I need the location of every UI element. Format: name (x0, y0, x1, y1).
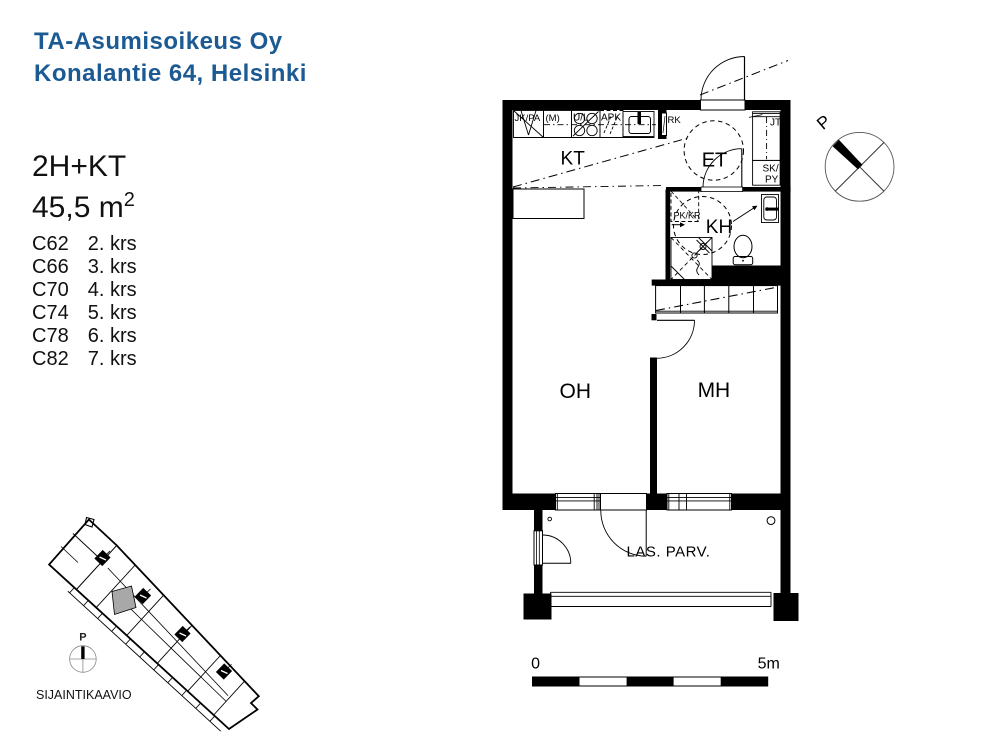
svg-text:P: P (79, 632, 86, 644)
svg-text:MH: MH (698, 379, 731, 402)
svg-text:SK/: SK/ (763, 164, 779, 175)
svg-text:(M): (M) (546, 113, 560, 124)
svg-text:OH: OH (560, 380, 592, 403)
svg-text:JK/PA: JK/PA (515, 113, 541, 124)
svg-text:5m: 5m (758, 656, 780, 673)
svg-text:PY: PY (765, 175, 779, 186)
svg-text:LAS. PARV.: LAS. PARV. (627, 543, 711, 560)
svg-text:U/L: U/L (573, 113, 589, 124)
svg-text:JT: JT (770, 118, 781, 129)
svg-text:SIJAINTIKAAVIO: SIJAINTIKAAVIO (36, 688, 132, 702)
svg-text:P: P (813, 111, 835, 134)
svg-text:KH: KH (706, 217, 732, 238)
svg-text:KT: KT (561, 149, 586, 170)
svg-text:PK/KR: PK/KR (674, 211, 702, 221)
svg-text:APK: APK (601, 113, 621, 124)
svg-text:0: 0 (531, 656, 540, 673)
svg-text:RK: RK (668, 115, 682, 126)
